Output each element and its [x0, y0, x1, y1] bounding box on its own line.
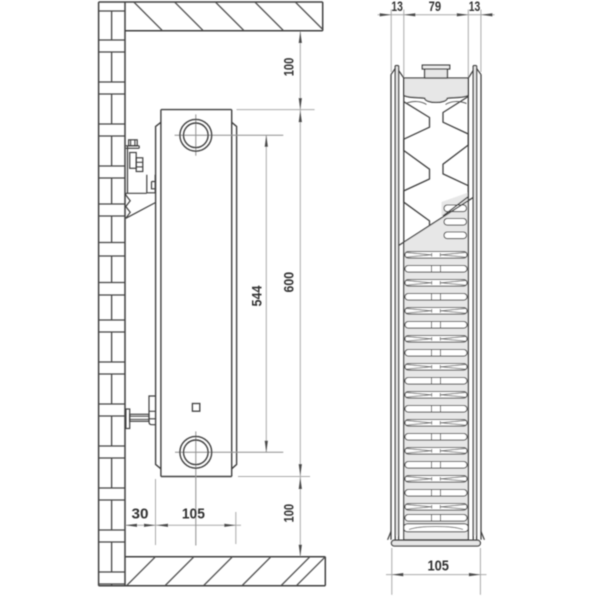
svg-text:79: 79 [429, 0, 442, 14]
svg-text:13: 13 [391, 0, 403, 14]
svg-text:544: 544 [248, 285, 264, 306]
svg-text:600: 600 [280, 272, 296, 293]
svg-text:100: 100 [280, 504, 296, 523]
svg-text:105: 105 [427, 558, 449, 574]
svg-text:105: 105 [182, 507, 205, 523]
svg-text:30: 30 [132, 507, 149, 523]
svg-text:13: 13 [469, 0, 481, 14]
svg-text:100: 100 [280, 58, 296, 77]
